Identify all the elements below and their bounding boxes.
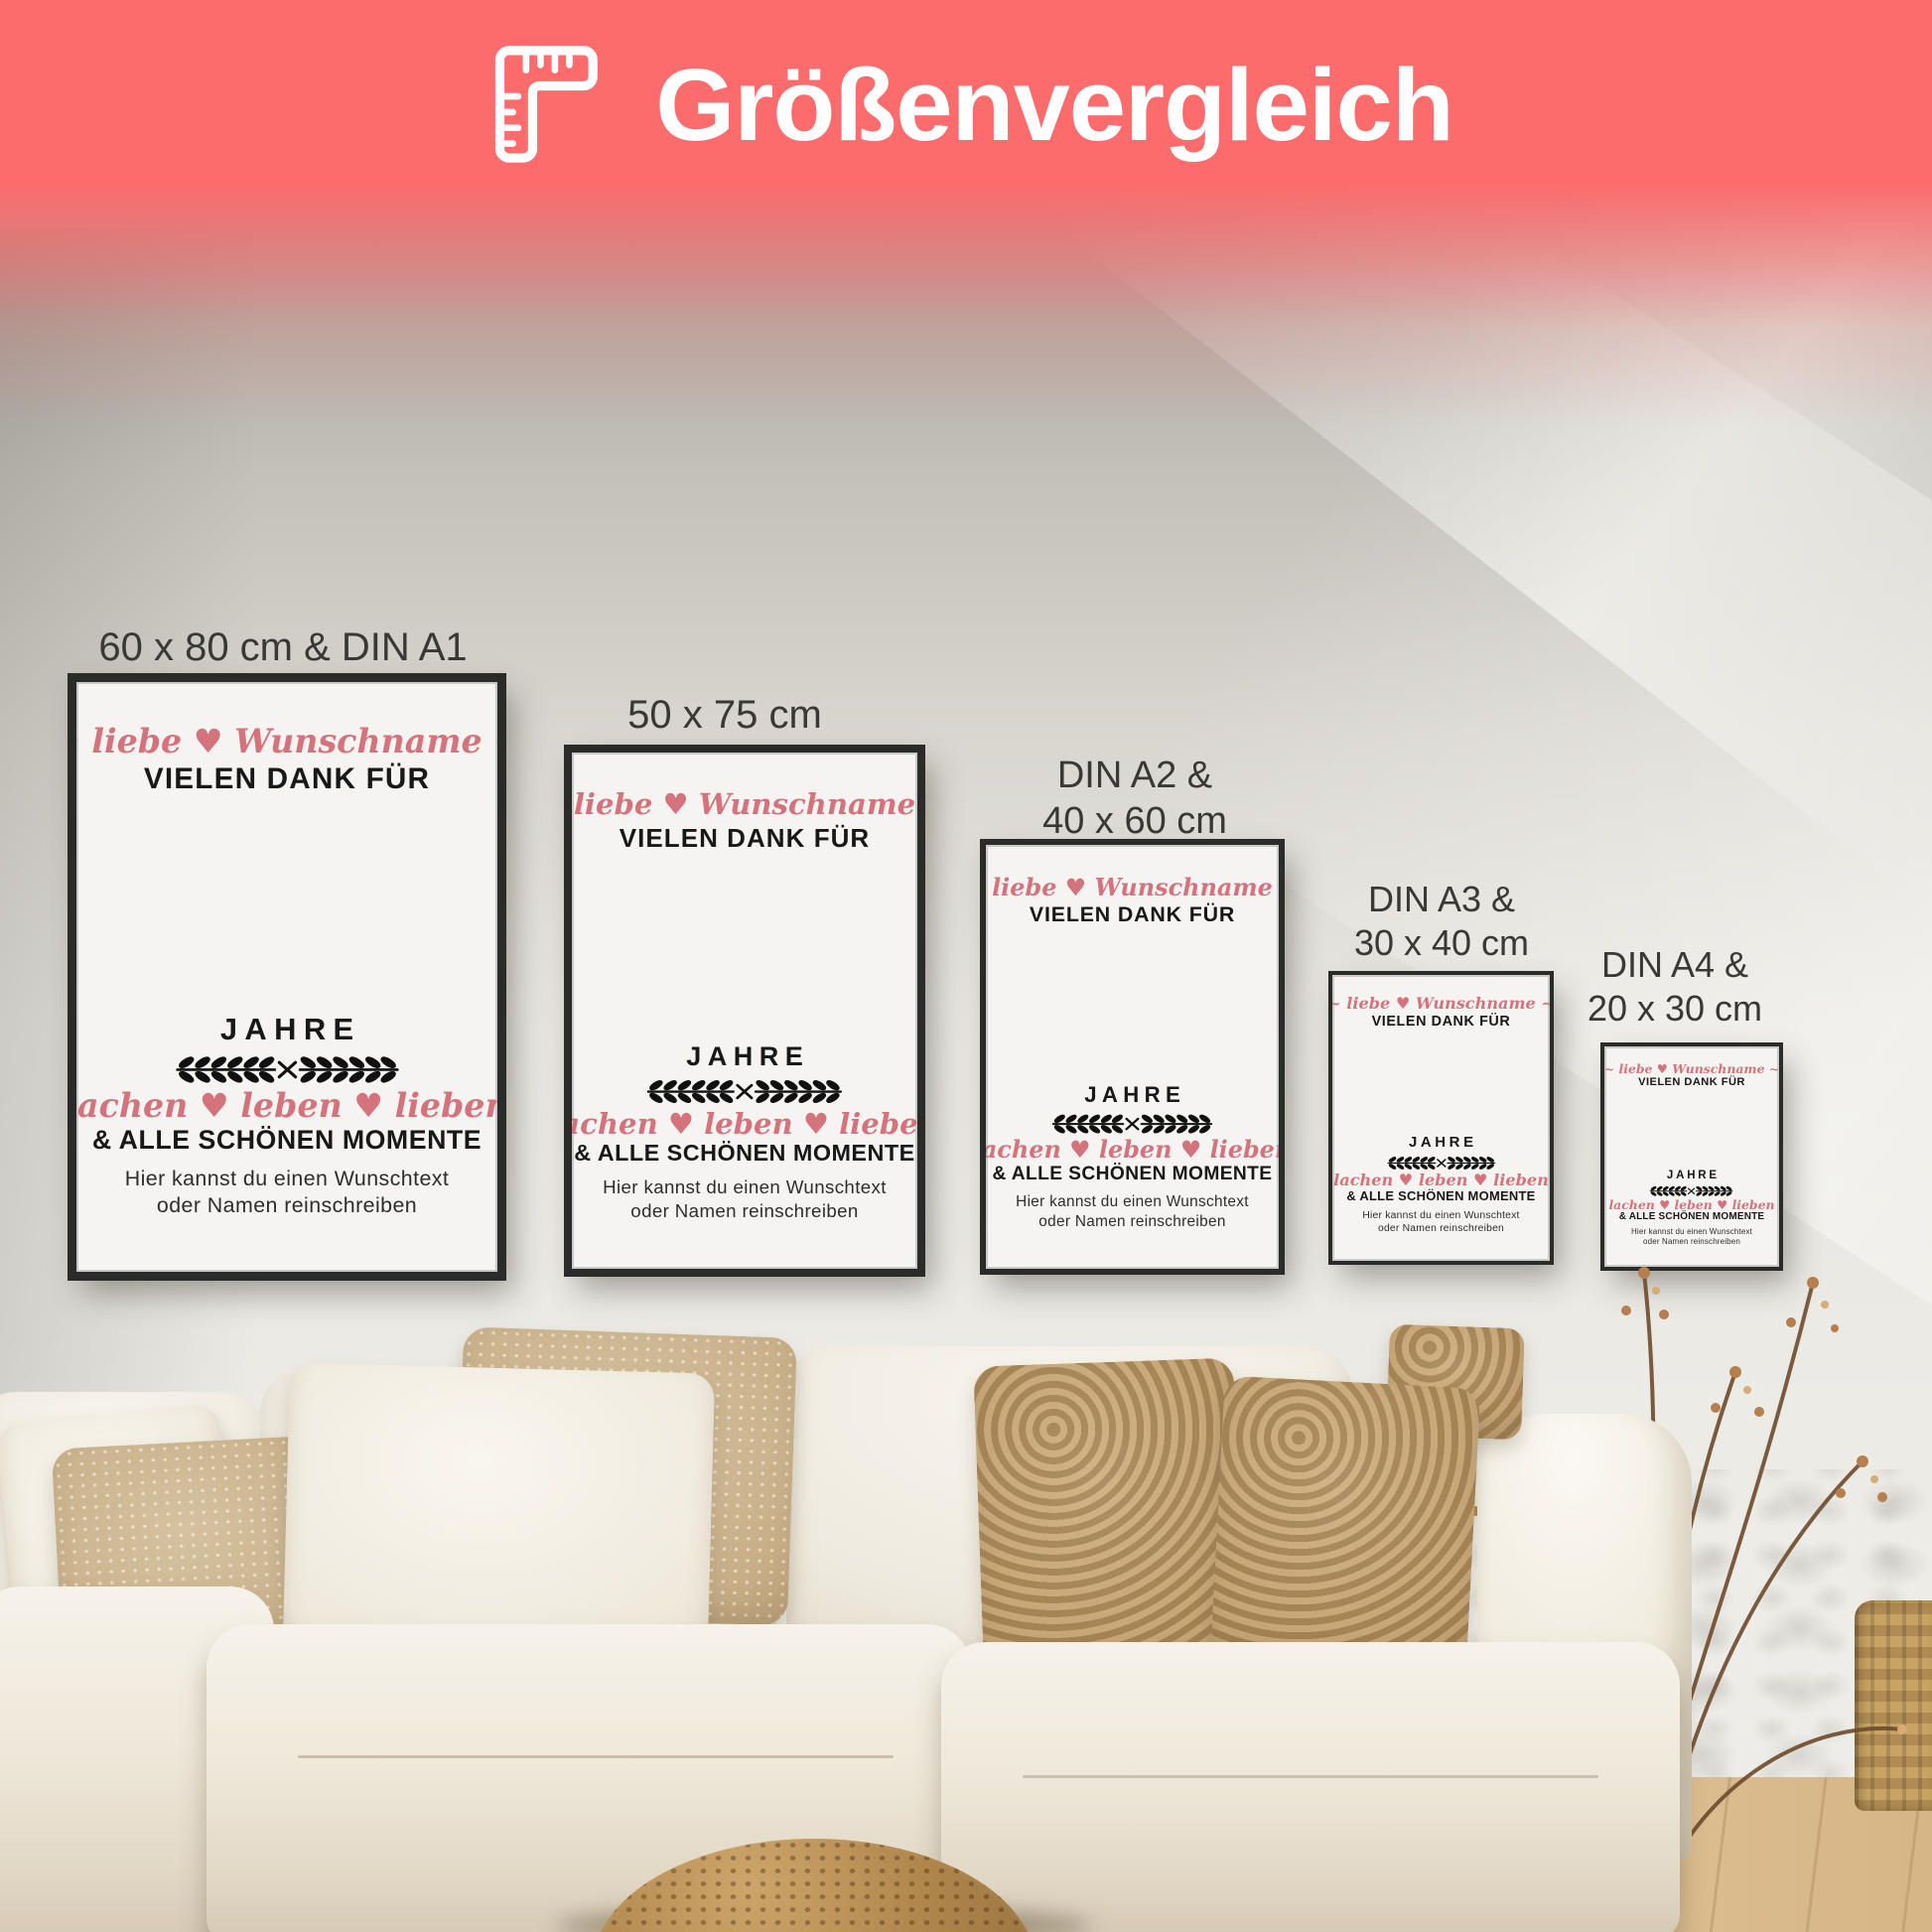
poster-size-label-line: DIN A2 & <box>1042 753 1227 798</box>
photo-collage-number: 54 <box>621 855 867 1035</box>
laurel-ornament <box>637 1078 852 1105</box>
poster-size-label-line: DIN A4 & <box>1587 943 1762 987</box>
framed-poster: ~ liebe ♥ Wunschname ~ VIELEN DANK FÜR 5… <box>68 673 506 1281</box>
poster-size-label-line: DIN A3 & <box>1354 878 1529 921</box>
framed-poster: ~ liebe ♥ Wunschname ~ VIELEN DANK FÜR 5… <box>980 839 1285 1275</box>
poster-note-line: Hier kannst du einen Wunschtext <box>1016 1192 1249 1212</box>
poster-size-label-line: 50 x 75 cm <box>627 691 822 740</box>
poster-size-label-line: 60 x 80 cm & DIN A1 <box>98 623 467 672</box>
poster-size-label: DIN A3 &30 x 40 cm <box>1354 878 1529 965</box>
poster-size-label: DIN A2 &40 x 60 cm <box>1042 753 1227 845</box>
poster-size-label-line: 20 x 30 cm <box>1587 987 1762 1031</box>
page-title: Größenvergleich <box>655 54 1453 156</box>
photo-collage-number: 54 <box>1032 928 1233 1076</box>
throw-pillow <box>1209 1375 1480 1680</box>
cushion-seam <box>1023 1775 1598 1778</box>
laurel-ornament <box>157 1054 418 1085</box>
poster-moments-line: & ALLE SCHÖNEN MOMENTE <box>574 1142 914 1165</box>
poster-motto: lachen ♥ leben ♥ lieben <box>68 1089 506 1124</box>
poster-note-line: oder Namen reinschreiben <box>630 1199 858 1223</box>
cushion-seam <box>298 1755 894 1758</box>
poster-note-line: oder Namen reinschreiben <box>1038 1212 1225 1232</box>
poster-moments-line: & ALLE SCHÖNEN MOMENTE <box>92 1127 482 1154</box>
header: Größenvergleich <box>0 30 1932 179</box>
poster-years-label: JAHRE <box>1079 1084 1185 1106</box>
sofa-seat-cushion <box>941 1642 1680 1932</box>
framed-poster: ~ liebe ♥ Wunschname ~ VIELEN DANK FÜR 5… <box>564 745 925 1277</box>
poster-note-line: oder Namen reinschreiben <box>157 1192 417 1220</box>
poster-moments-line: & ALLE SCHÖNEN MOMENTE <box>993 1165 1273 1183</box>
poster-size-label-line: 40 x 60 cm <box>1042 798 1227 844</box>
photo-collage-number: 54 <box>147 798 428 1004</box>
poster-motto: lachen ♥ leben ♥ lieben <box>564 1109 925 1140</box>
poster-size-label: 50 x 75 cm <box>627 691 822 740</box>
poster-years-label: JAHRE <box>680 1043 810 1070</box>
poster-size-label: DIN A4 &20 x 30 cm <box>1587 943 1762 1031</box>
poster-note-line: Hier kannst du einen Wunschtext <box>125 1166 450 1193</box>
ruler-icon <box>479 39 616 170</box>
poster-motto: lachen ♥ leben ♥ lieben <box>980 1138 1285 1163</box>
laurel-ornament <box>1041 1113 1223 1135</box>
poster-size-label: 60 x 80 cm & DIN A1 <box>98 623 467 672</box>
poster-note-line: Hier kannst du einen Wunschtext <box>603 1175 887 1199</box>
poster-years-label: JAHRE <box>212 1015 360 1045</box>
poster-size-label-line: 30 x 40 cm <box>1354 921 1529 965</box>
living-room-scene: Größenvergleich 60 x 80 cm & DIN A1 ~ li… <box>0 0 1932 1932</box>
